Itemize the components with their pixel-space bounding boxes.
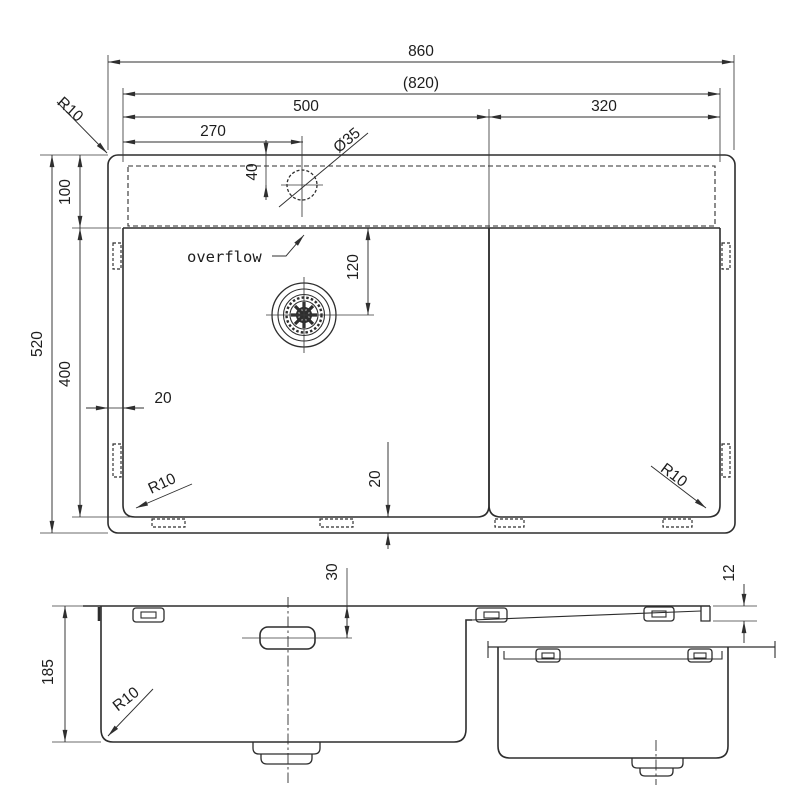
clip-left-bottom — [113, 444, 121, 477]
dim-label-r10-br: R10 — [657, 460, 690, 491]
dim-rim-depth: 100 — [57, 155, 80, 228]
dim-faucet-setback: 40 — [244, 140, 266, 200]
front-clip-3 — [644, 607, 674, 621]
rim-lip-dashed — [128, 166, 715, 226]
front-clip-2-inner — [484, 612, 499, 618]
drain-plan — [266, 277, 374, 353]
mounting-clips-front — [133, 607, 674, 622]
sink-outer-edge — [108, 155, 735, 533]
dim-label-12: 12 — [721, 564, 738, 581]
end-section-view — [488, 641, 775, 785]
clip-bottom-4 — [663, 519, 692, 527]
dim-overall-depth: 520 — [29, 155, 52, 533]
dim-label-820: (820) — [403, 75, 439, 92]
front-clip-1 — [133, 608, 164, 622]
drain-section — [632, 758, 683, 776]
clip-bottom-3 — [495, 519, 524, 527]
dim-label-860: 860 — [408, 43, 434, 60]
drain-body-front — [261, 754, 312, 764]
clip-bottom-2 — [320, 519, 353, 527]
dim-overall-width: 860 — [108, 43, 734, 62]
section-clip-2 — [688, 649, 712, 662]
extension-lines-plan — [40, 55, 734, 533]
dim-label-30: 30 — [324, 563, 341, 581]
clip-right-bottom — [722, 444, 730, 477]
clip-left-top — [113, 243, 121, 269]
dim-label-r10-bl: R10 — [146, 470, 179, 498]
dim-bowl-depth: 185 — [40, 606, 101, 742]
overflow-label: overflow — [187, 248, 262, 266]
radius-callout-bottom-right: R10 — [651, 460, 706, 508]
dim-cutout-width: (820) — [123, 75, 720, 94]
dim-rim-height: 12 — [713, 564, 757, 643]
dim-bowl-width: 500 — [123, 98, 489, 117]
section-clip-1 — [536, 649, 560, 662]
dim-label-40: 40 — [244, 163, 261, 181]
front-clip-1-inner — [141, 612, 156, 618]
dim-label-520: 520 — [29, 331, 46, 357]
drain-body-section — [640, 768, 673, 776]
dim-label-20-bottom: 20 — [367, 470, 384, 488]
main-bowl-outline — [123, 228, 489, 517]
radius-callout-top-left: R10 — [54, 94, 107, 153]
dim-label-500: 500 — [293, 98, 319, 115]
radius-callout-front: R10 — [108, 684, 153, 736]
front-right-lip-notch — [701, 606, 710, 621]
clip-bottom-1 — [152, 519, 185, 527]
front-view: 185 R10 30 12 — [40, 563, 757, 783]
dim-bowl-length: 400 — [57, 228, 80, 517]
dim-label-faucet-diameter: Ø35 — [330, 125, 363, 157]
mounting-clips-plan — [113, 243, 730, 527]
dim-label-100: 100 — [57, 179, 74, 205]
dim-label-20-left: 20 — [154, 390, 172, 407]
clip-right-top — [722, 243, 730, 269]
drawing-svg: Ø35 — [0, 0, 798, 800]
drain-front — [253, 742, 320, 764]
mounting-clips-section — [536, 649, 712, 662]
section-inner-rim-line — [504, 651, 722, 659]
dim-label-r10-front: R10 — [110, 684, 143, 715]
plan-view: Ø35 — [29, 43, 735, 549]
dim-side-gap: 20 — [86, 390, 172, 408]
radius-callout-bottom-left: R10 — [136, 470, 192, 508]
front-clip-3-inner — [652, 611, 666, 617]
dim-faucet-offset: 270 — [123, 123, 303, 142]
dim-label-400: 400 — [57, 361, 74, 387]
section-clip-1-inner — [542, 653, 554, 658]
dim-label-185: 185 — [40, 659, 57, 685]
drain-flange-section — [632, 758, 683, 768]
dim-overflow-offset: 30 — [324, 563, 347, 638]
dim-label-r10-tl: R10 — [54, 94, 87, 126]
dim-drain-offset: 120 — [345, 228, 368, 315]
dim-label-320: 320 — [591, 98, 617, 115]
drain-flange-front — [253, 742, 320, 754]
faucet-hole: Ø35 — [279, 125, 368, 217]
dim-right-section-width: 320 — [489, 98, 720, 117]
section-clip-2-inner — [694, 653, 706, 658]
overflow-callout: overflow — [187, 235, 304, 266]
dim-label-270: 270 — [200, 123, 226, 140]
section-bowl-outline — [498, 647, 728, 758]
sink-technical-drawing: Ø35 — [0, 0, 798, 800]
dim-label-120: 120 — [345, 254, 362, 280]
